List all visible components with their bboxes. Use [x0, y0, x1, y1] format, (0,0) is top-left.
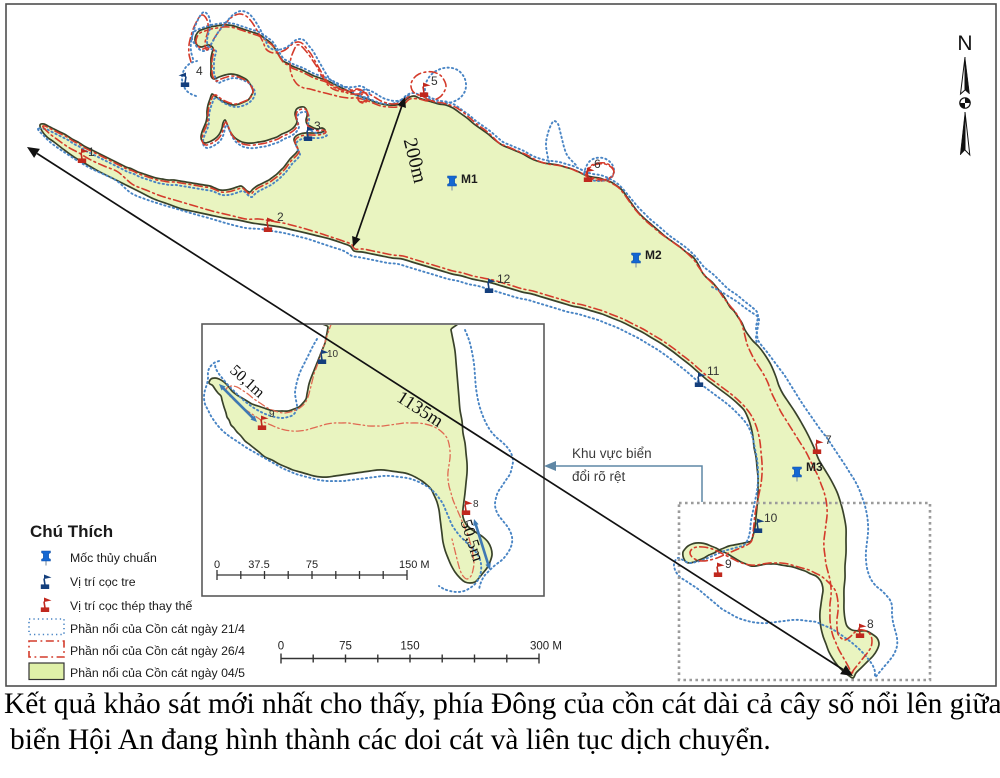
svg-text:9: 9	[725, 557, 732, 571]
svg-text:75: 75	[339, 641, 352, 653]
svg-text:10: 10	[764, 511, 778, 525]
svg-text:6: 6	[594, 157, 601, 171]
svg-text:75: 75	[306, 559, 318, 571]
svg-text:Mốc thủy chuẩn: Mốc thủy chuẩn	[70, 551, 157, 565]
svg-text:Khu vực biển: Khu vực biển	[572, 446, 652, 461]
svg-text:150: 150	[400, 641, 419, 653]
svg-text:10: 10	[327, 349, 339, 360]
svg-text:N: N	[957, 32, 972, 55]
svg-text:150 M: 150 M	[399, 559, 430, 571]
svg-text:7: 7	[825, 433, 832, 447]
svg-text:Phần nổi của Cồn cát ngày 04/5: Phần nổi của Cồn cát ngày 04/5	[70, 666, 245, 680]
svg-text:8: 8	[867, 617, 874, 631]
svg-text:12: 12	[497, 272, 511, 286]
svg-text:4: 4	[196, 64, 203, 78]
svg-text:37.5: 37.5	[248, 559, 269, 571]
svg-text:Phần nổi của Cồn cát ngày 21/4: Phần nổi của Cồn cát ngày 21/4	[70, 622, 245, 636]
svg-text:5: 5	[431, 74, 438, 88]
svg-text:Vị trí cọc thép thay thế: Vị trí cọc thép thay thế	[70, 599, 193, 613]
svg-text:đổi rõ rệt: đổi rõ rệt	[572, 469, 626, 484]
svg-text:Vị trí cọc tre: Vị trí cọc tre	[70, 575, 136, 589]
svg-text:Chú Thích: Chú Thích	[30, 522, 113, 541]
svg-text:1: 1	[88, 145, 95, 159]
svg-text:300 M: 300 M	[530, 641, 562, 653]
svg-text:11: 11	[707, 364, 720, 378]
svg-text:M2: M2	[645, 248, 662, 262]
svg-text:M3: M3	[806, 460, 823, 474]
svg-text:2: 2	[277, 210, 284, 224]
svg-text:Phần nổi của Cồn cát ngày 26/4: Phần nổi của Cồn cát ngày 26/4	[70, 644, 245, 658]
svg-text:3: 3	[314, 119, 321, 133]
svg-text:9: 9	[269, 409, 275, 420]
svg-text:M1: M1	[461, 172, 478, 186]
svg-text:0: 0	[214, 559, 220, 571]
svg-text:8: 8	[473, 499, 479, 510]
svg-text:0: 0	[278, 641, 284, 653]
